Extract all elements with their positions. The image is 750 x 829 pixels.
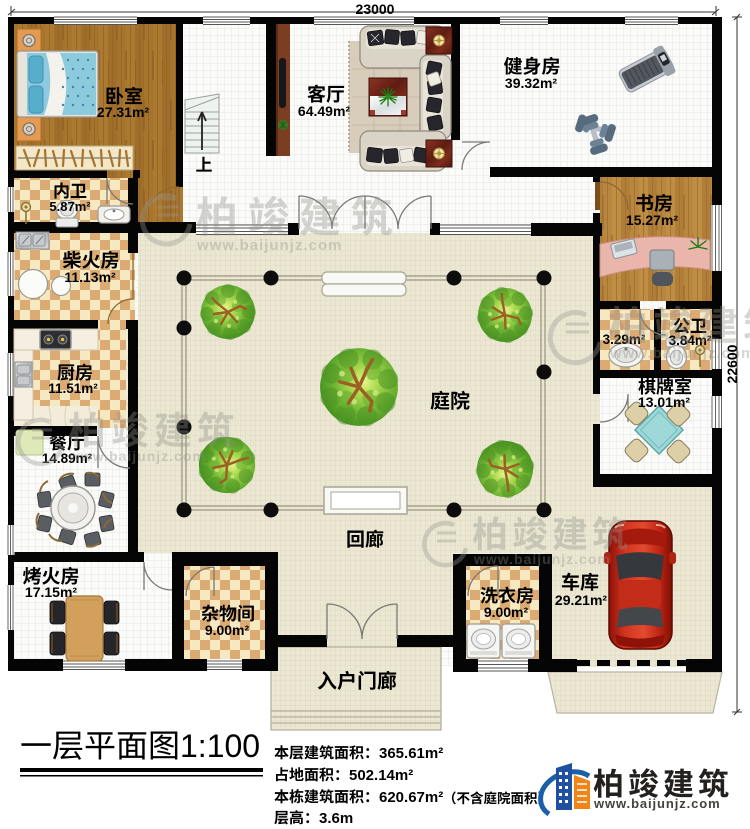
svg-text:620.67m²: 620.67m²	[379, 789, 443, 806]
svg-text:www.baijunjz.com: www.baijunjz.com	[473, 551, 611, 567]
svg-text:365.61m²: 365.61m²	[379, 745, 443, 762]
svg-text:11.51m²: 11.51m²	[48, 381, 98, 396]
svg-text:27.31m²: 27.31m²	[97, 104, 149, 120]
svg-text:www.baijunjz.com: www.baijunjz.com	[593, 796, 721, 811]
svg-text:17.15m²: 17.15m²	[25, 584, 77, 600]
svg-text:22600: 22600	[724, 344, 740, 383]
svg-text:29.21m²: 29.21m²	[555, 592, 607, 608]
svg-text:11.13m²: 11.13m²	[64, 269, 116, 285]
svg-text:3.6m: 3.6m	[319, 810, 353, 827]
svg-text:23000: 23000	[356, 1, 395, 17]
svg-text:39.32m²: 39.32m²	[505, 75, 557, 91]
svg-text:www.baijunjz.com: www.baijunjz.com	[196, 237, 342, 254]
svg-text:www.baijunjz.com: www.baijunjz.com	[68, 448, 206, 464]
svg-text:1:100: 1:100	[180, 728, 260, 764]
svg-text:9.00m²: 9.00m²	[484, 604, 529, 620]
svg-text:15.27m²: 15.27m²	[626, 212, 678, 228]
svg-text:5.87m²: 5.87m²	[49, 199, 91, 214]
svg-text:502.14m²: 502.14m²	[349, 767, 413, 784]
svg-text:13.01m²: 13.01m²	[638, 394, 690, 410]
svg-text:64.49m²: 64.49m²	[298, 103, 350, 119]
svg-text:9.00m²: 9.00m²	[205, 622, 250, 638]
